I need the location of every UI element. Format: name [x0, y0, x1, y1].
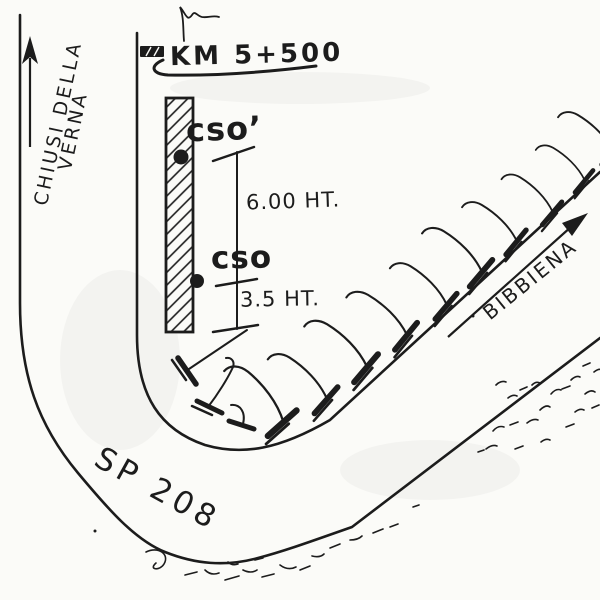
guardrail-post-icon — [499, 159, 568, 231]
hand-drawn-road-sketch: CHIUSI DELLA VERNA KM 5+500 cso’ 6.00 HT… — [0, 0, 600, 600]
guardrail-post-icon — [172, 330, 247, 384]
guardrail-post-icon — [220, 349, 303, 444]
survey-flag-icon — [180, 7, 219, 41]
guardrail-post-icon — [555, 95, 600, 171]
cso-prime-label: cso’ — [185, 109, 262, 150]
guardrail-post-icon — [229, 405, 254, 429]
cso-label: cso — [211, 239, 273, 276]
tick-bottom — [213, 325, 258, 332]
guardrail-post-icon — [533, 130, 599, 198]
guardrail-post-icon — [387, 246, 464, 326]
dimension-upper-label: 6.00 HT. — [246, 187, 341, 214]
km-marker-label: KM 5+500 — [170, 38, 344, 73]
dimension-lower-label: 3.5 HT. — [240, 286, 320, 311]
km-marker-stone-icon — [140, 46, 164, 57]
guardrail-post-icon — [192, 358, 234, 415]
guardrail-post-icon — [264, 336, 344, 421]
cso-point — [190, 274, 204, 288]
cso-prime-point — [174, 150, 189, 165]
tick-top — [213, 147, 254, 161]
direction-arrow-chiusi-icon — [22, 36, 38, 147]
guardrail-post-icon — [459, 185, 533, 261]
